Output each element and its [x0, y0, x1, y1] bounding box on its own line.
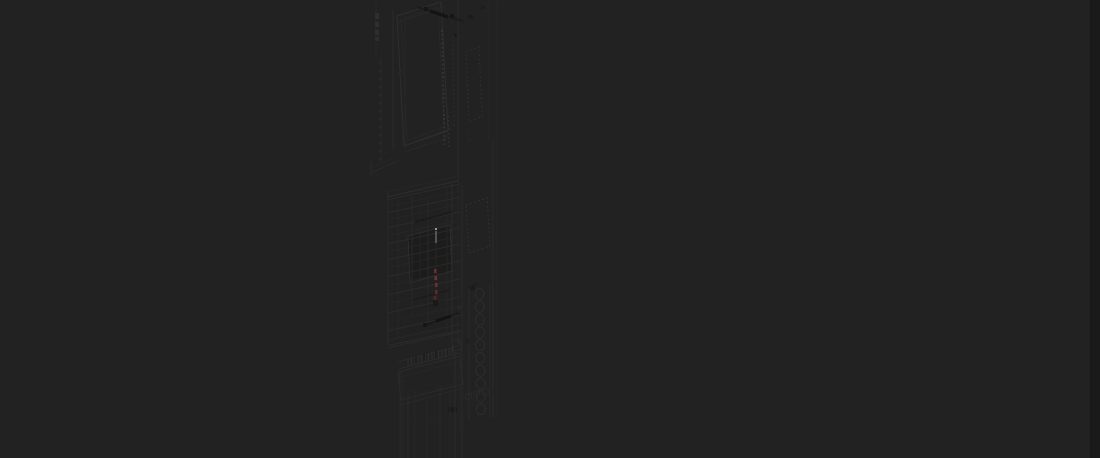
frame-bracket-mid — [466, 198, 490, 253]
top-panel — [393, 2, 468, 152]
right-edge-strip — [1090, 0, 1100, 458]
viewport-background — [0, 0, 1100, 458]
main-board-block — [386, 177, 462, 348]
wireframe-viewport[interactable] — [0, 0, 1100, 458]
section-arrows — [463, 276, 480, 344]
frame-bracket-top — [466, 47, 482, 141]
hole-strip — [458, 284, 490, 420]
mid-bracket — [371, 157, 406, 177]
left-rail — [375, 4, 386, 162]
connector-tray — [398, 339, 489, 453]
